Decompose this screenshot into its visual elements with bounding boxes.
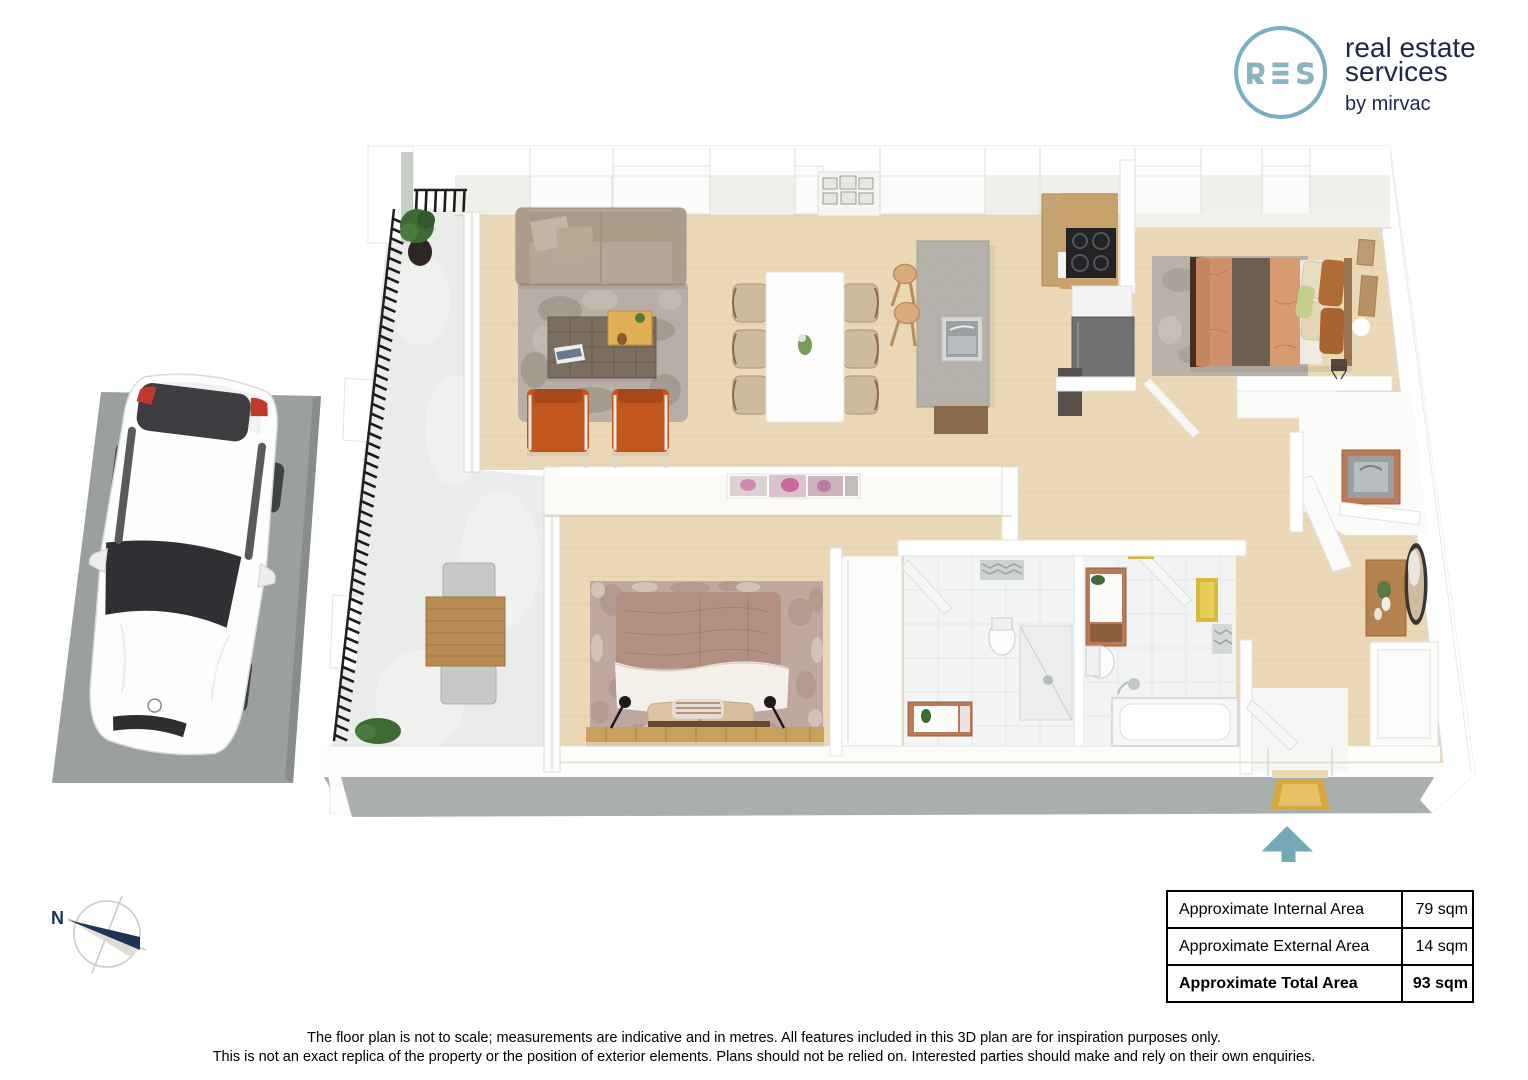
svg-text:N: N bbox=[51, 908, 64, 928]
